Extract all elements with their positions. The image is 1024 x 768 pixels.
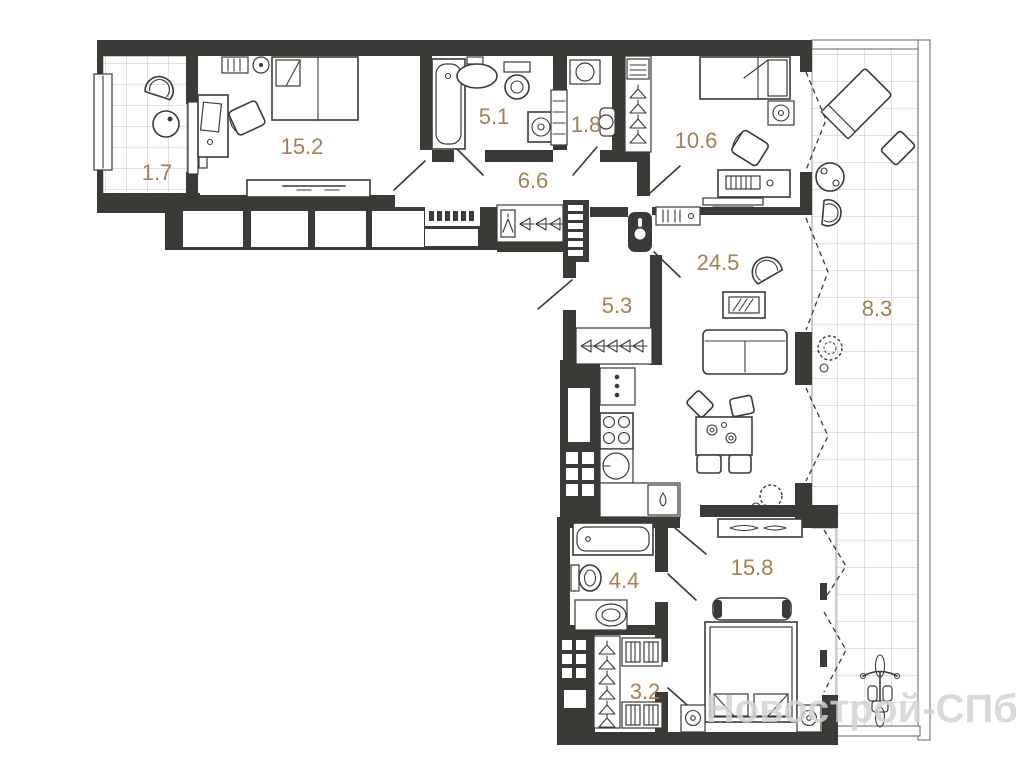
- single-bed-2-icon: [700, 57, 790, 99]
- kitchen-corner-counter: [600, 483, 680, 517]
- shoe-cabinet-icon: [563, 200, 589, 262]
- living-room-furniture: [686, 252, 787, 511]
- entry-hall-closet: [576, 328, 652, 364]
- toilet-icon: [504, 62, 530, 99]
- floor-plan-page: 1.7 15.2 5.1 1.8 6.6 10.6 24.5 5.3 8.3 4…: [0, 0, 1024, 768]
- single-bed-icon: [272, 57, 358, 120]
- tv-unit-icon: [723, 292, 765, 318]
- window-balcony-left: [94, 74, 112, 170]
- room-label-wardrobe: 3.2: [630, 679, 661, 704]
- room-label-balcony-top: 1.7: [142, 160, 173, 185]
- entrance-door-icon: [628, 212, 652, 252]
- room-label-bathroom-bottom: 4.4: [609, 568, 640, 593]
- dresser-icon: [718, 519, 802, 537]
- balcony-right: [812, 40, 930, 740]
- dining-chair-icon: [686, 390, 714, 418]
- bathtub-2-icon: [573, 523, 653, 555]
- nightstand-lamp-icon: [768, 101, 794, 125]
- tv-wall-icon: [703, 198, 763, 207]
- desk-icon: [198, 95, 228, 157]
- kitchen-units: [600, 368, 680, 517]
- sink-2-icon: [575, 600, 627, 630]
- room-label-hallway: 6.6: [518, 168, 549, 193]
- watermark: Новострой-СПб: [706, 687, 1018, 731]
- room-label-bedroom-bottom: 15.8: [731, 555, 774, 580]
- balcony-glazing-top: [812, 40, 920, 49]
- room-label-balcony-right: 8.3: [862, 296, 893, 321]
- balcony-table-icon: [153, 111, 179, 137]
- desk-chair-icon: [226, 100, 266, 137]
- room-label-bedroom-top: 15.2: [281, 134, 324, 159]
- wc-toilet-icon: [599, 108, 615, 136]
- room-label-entry-hall: 5.3: [602, 293, 633, 318]
- balcony-glazing-right: [918, 40, 930, 740]
- chair-icon: [729, 128, 770, 167]
- wardrobe-open-icon: [625, 56, 651, 152]
- dining-chair-icon: [697, 455, 721, 473]
- dining-chair-icon: [729, 455, 751, 473]
- tv-stand-icon: [247, 180, 370, 197]
- bedroom-top-furniture: [198, 57, 370, 197]
- room-label-wc: 1.8: [571, 112, 602, 137]
- bathroom-top-fixtures: [432, 57, 567, 149]
- room-label-living: 24.5: [697, 250, 740, 275]
- entry-console-icon: [656, 207, 700, 225]
- wc-sink-icon: [570, 60, 600, 84]
- mini-wardrobe-icon: [501, 210, 515, 237]
- dining-table-icon: [696, 417, 752, 455]
- hallway-storage: [497, 200, 589, 262]
- kitchen-sink-icon: [600, 449, 633, 483]
- stove-icon: [600, 413, 633, 449]
- toilet-2-icon: [571, 565, 601, 591]
- balcony-round-table-icon: [816, 163, 844, 191]
- shelf-clothes-top: [622, 638, 662, 666]
- sofa-icon: [703, 330, 787, 374]
- bench-icon: [713, 598, 791, 620]
- floor-plan-canvas: 1.7 15.2 5.1 1.8 6.6 10.6 24.5 5.3 8.3 4…: [0, 0, 1024, 768]
- armchair-icon: [747, 252, 783, 285]
- room-label-bedroom-right: 10.6: [675, 128, 718, 153]
- shelf-clothes-bottom: [622, 702, 662, 728]
- desk-2-icon: [718, 170, 790, 197]
- oven-cabinet-icon: [600, 368, 635, 405]
- shelf-icon: [222, 57, 269, 73]
- room-label-bathroom-top: 5.1: [479, 104, 510, 129]
- dining-chair-icon: [729, 395, 754, 417]
- towel-radiator-icon: [551, 90, 567, 145]
- washing-machine-icon: [528, 112, 554, 142]
- nightstand-lamp-icon: [681, 705, 705, 732]
